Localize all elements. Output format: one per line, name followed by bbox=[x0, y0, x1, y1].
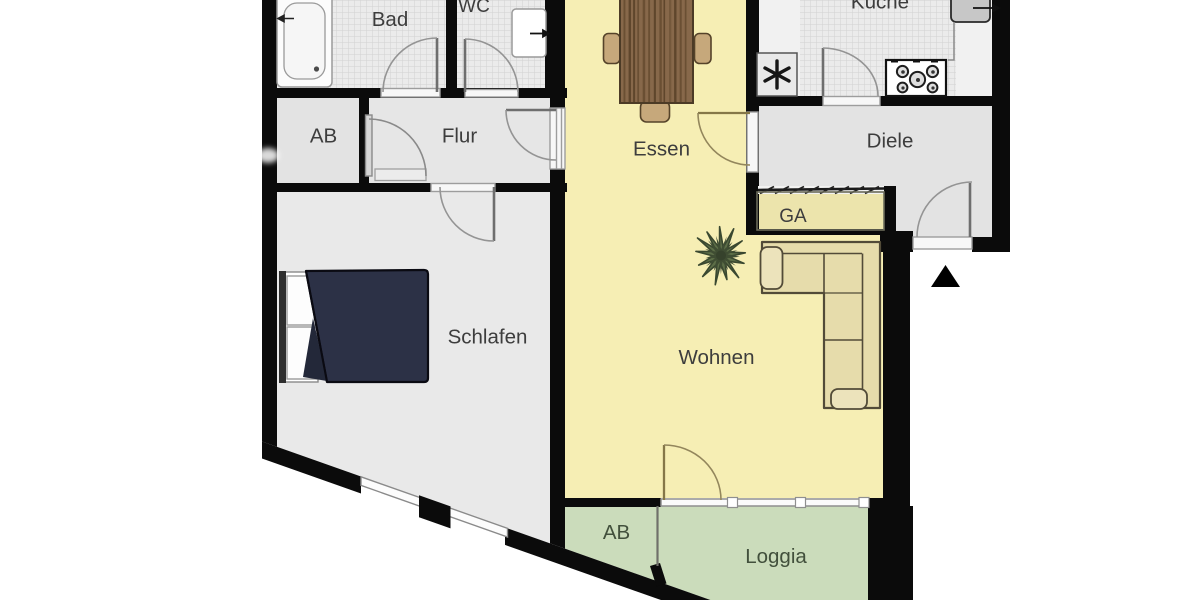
svg-text:Wohnen: Wohnen bbox=[679, 346, 755, 369]
svg-text:Diele: Diele bbox=[867, 130, 914, 153]
svg-text:Essen: Essen bbox=[633, 138, 690, 161]
svg-text:Küche: Küche bbox=[851, 0, 909, 14]
svg-text:Bad: Bad bbox=[372, 8, 408, 31]
svg-text:WC: WC bbox=[458, 0, 490, 17]
svg-text:GA: GA bbox=[779, 206, 807, 227]
svg-text:AB: AB bbox=[603, 521, 630, 544]
svg-text:AB: AB bbox=[310, 125, 337, 148]
svg-text:Schlafen: Schlafen bbox=[448, 326, 528, 349]
svg-text:Loggia: Loggia bbox=[745, 545, 807, 568]
svg-text:Flur: Flur bbox=[442, 125, 477, 148]
